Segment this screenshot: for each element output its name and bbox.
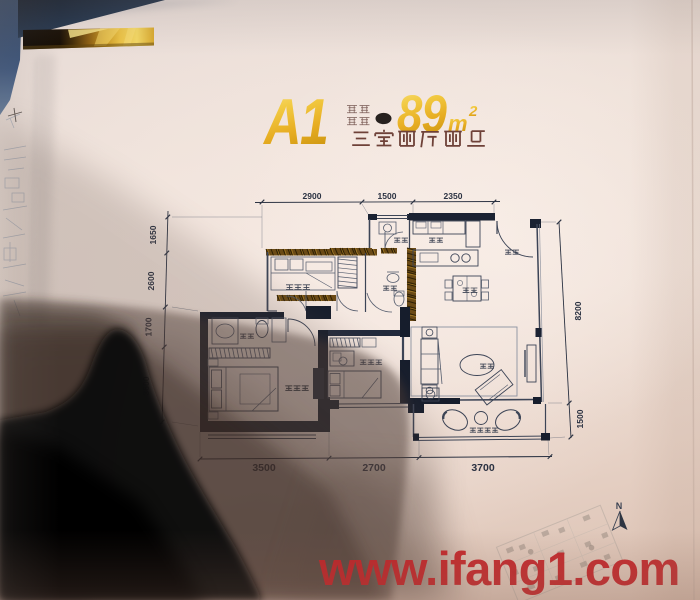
svg-text:3700: 3700 [471,462,495,474]
svg-text:2900: 2900 [303,191,322,201]
svg-text:1500: 1500 [378,191,397,201]
svg-text:2: 2 [468,103,478,120]
svg-text:N: N [616,501,623,511]
svg-text:A1: A1 [262,87,327,159]
svg-text:2350: 2350 [444,191,463,201]
svg-text:8200: 8200 [573,301,583,320]
svg-text:1500: 1500 [575,409,585,428]
svg-text:www.ifang1.com: www.ifang1.com [318,542,680,595]
